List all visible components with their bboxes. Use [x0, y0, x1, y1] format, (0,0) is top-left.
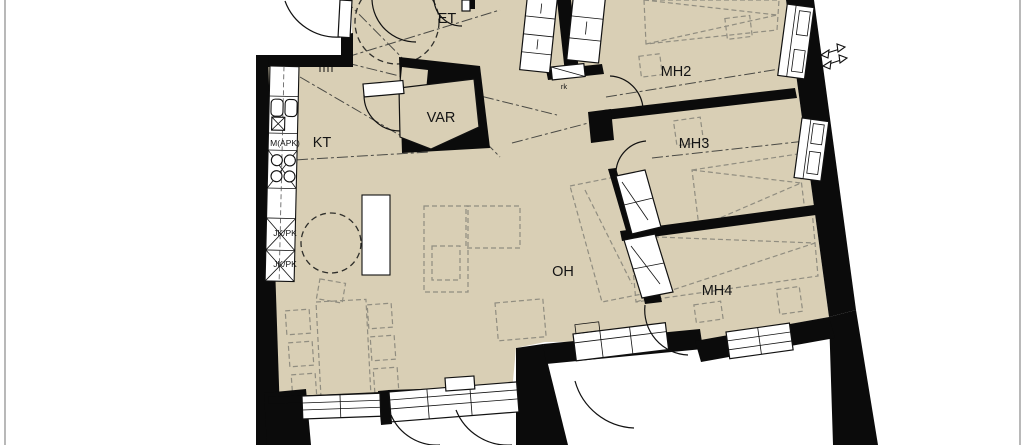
- wall-kt-top: [256, 55, 353, 67]
- wall-junction-block: [588, 109, 614, 143]
- entry-door-arc: [285, 1, 340, 37]
- label-closet-rk: rk: [561, 82, 567, 91]
- label-fridge-1: JK/PK: [273, 228, 297, 238]
- wardrobe-mh2: [567, 0, 606, 63]
- label-dishwasher: M(APK): [270, 138, 300, 148]
- balcony-door-arc: [575, 381, 634, 428]
- floor-plan-canvas: ET VAR KT OH MH2 MH3 MH4 M(APK) JK/PK JK…: [0, 0, 1024, 445]
- label-room-var: VAR: [427, 110, 456, 126]
- wall-right-lower: [829, 310, 878, 445]
- label-room-mh4: MH4: [702, 283, 733, 299]
- label-room-oh: OH: [552, 264, 574, 280]
- window-sill-cabinet: [445, 376, 475, 391]
- closet-rk-box: [551, 64, 585, 80]
- label-fridge-2: JK/PK: [273, 259, 297, 269]
- sink-bowl: [271, 99, 283, 116]
- window-oh-left: [302, 393, 381, 419]
- sink-bowl: [285, 99, 297, 116]
- label-room-kt: KT: [313, 135, 332, 151]
- floor-plan-svg: ET VAR KT OH MH2 MH3 MH4 M(APK) JK/PK JK…: [0, 0, 1024, 445]
- kitchen-island: [362, 195, 390, 275]
- label-room-et: ET: [438, 11, 457, 27]
- label-room-mh3: MH3: [679, 136, 710, 152]
- label-room-mh2: MH2: [661, 64, 692, 80]
- var-door-leaf: [363, 81, 404, 97]
- entry-door-leaf: [338, 0, 352, 38]
- direction-arrows-icon: [821, 44, 847, 69]
- kitchen-counter: [265, 66, 299, 282]
